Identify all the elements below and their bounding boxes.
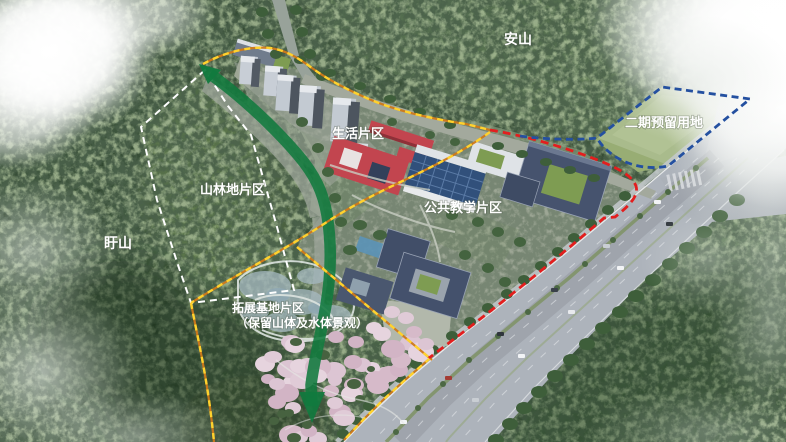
svg-text:（保留山体及水体景观）: （保留山体及水体景观） — [236, 315, 368, 330]
svg-text:盱山: 盱山 — [104, 235, 132, 251]
svg-text:公共教学片区: 公共教学片区 — [424, 200, 502, 215]
svg-text:生活片区: 生活片区 — [332, 126, 384, 141]
svg-text:山林地片区: 山林地片区 — [200, 182, 265, 197]
svg-text:拓展基地片区: 拓展基地片区 — [232, 300, 304, 315]
svg-text:安山: 安山 — [504, 31, 532, 47]
svg-text:二期预留用地: 二期预留用地 — [625, 115, 703, 130]
